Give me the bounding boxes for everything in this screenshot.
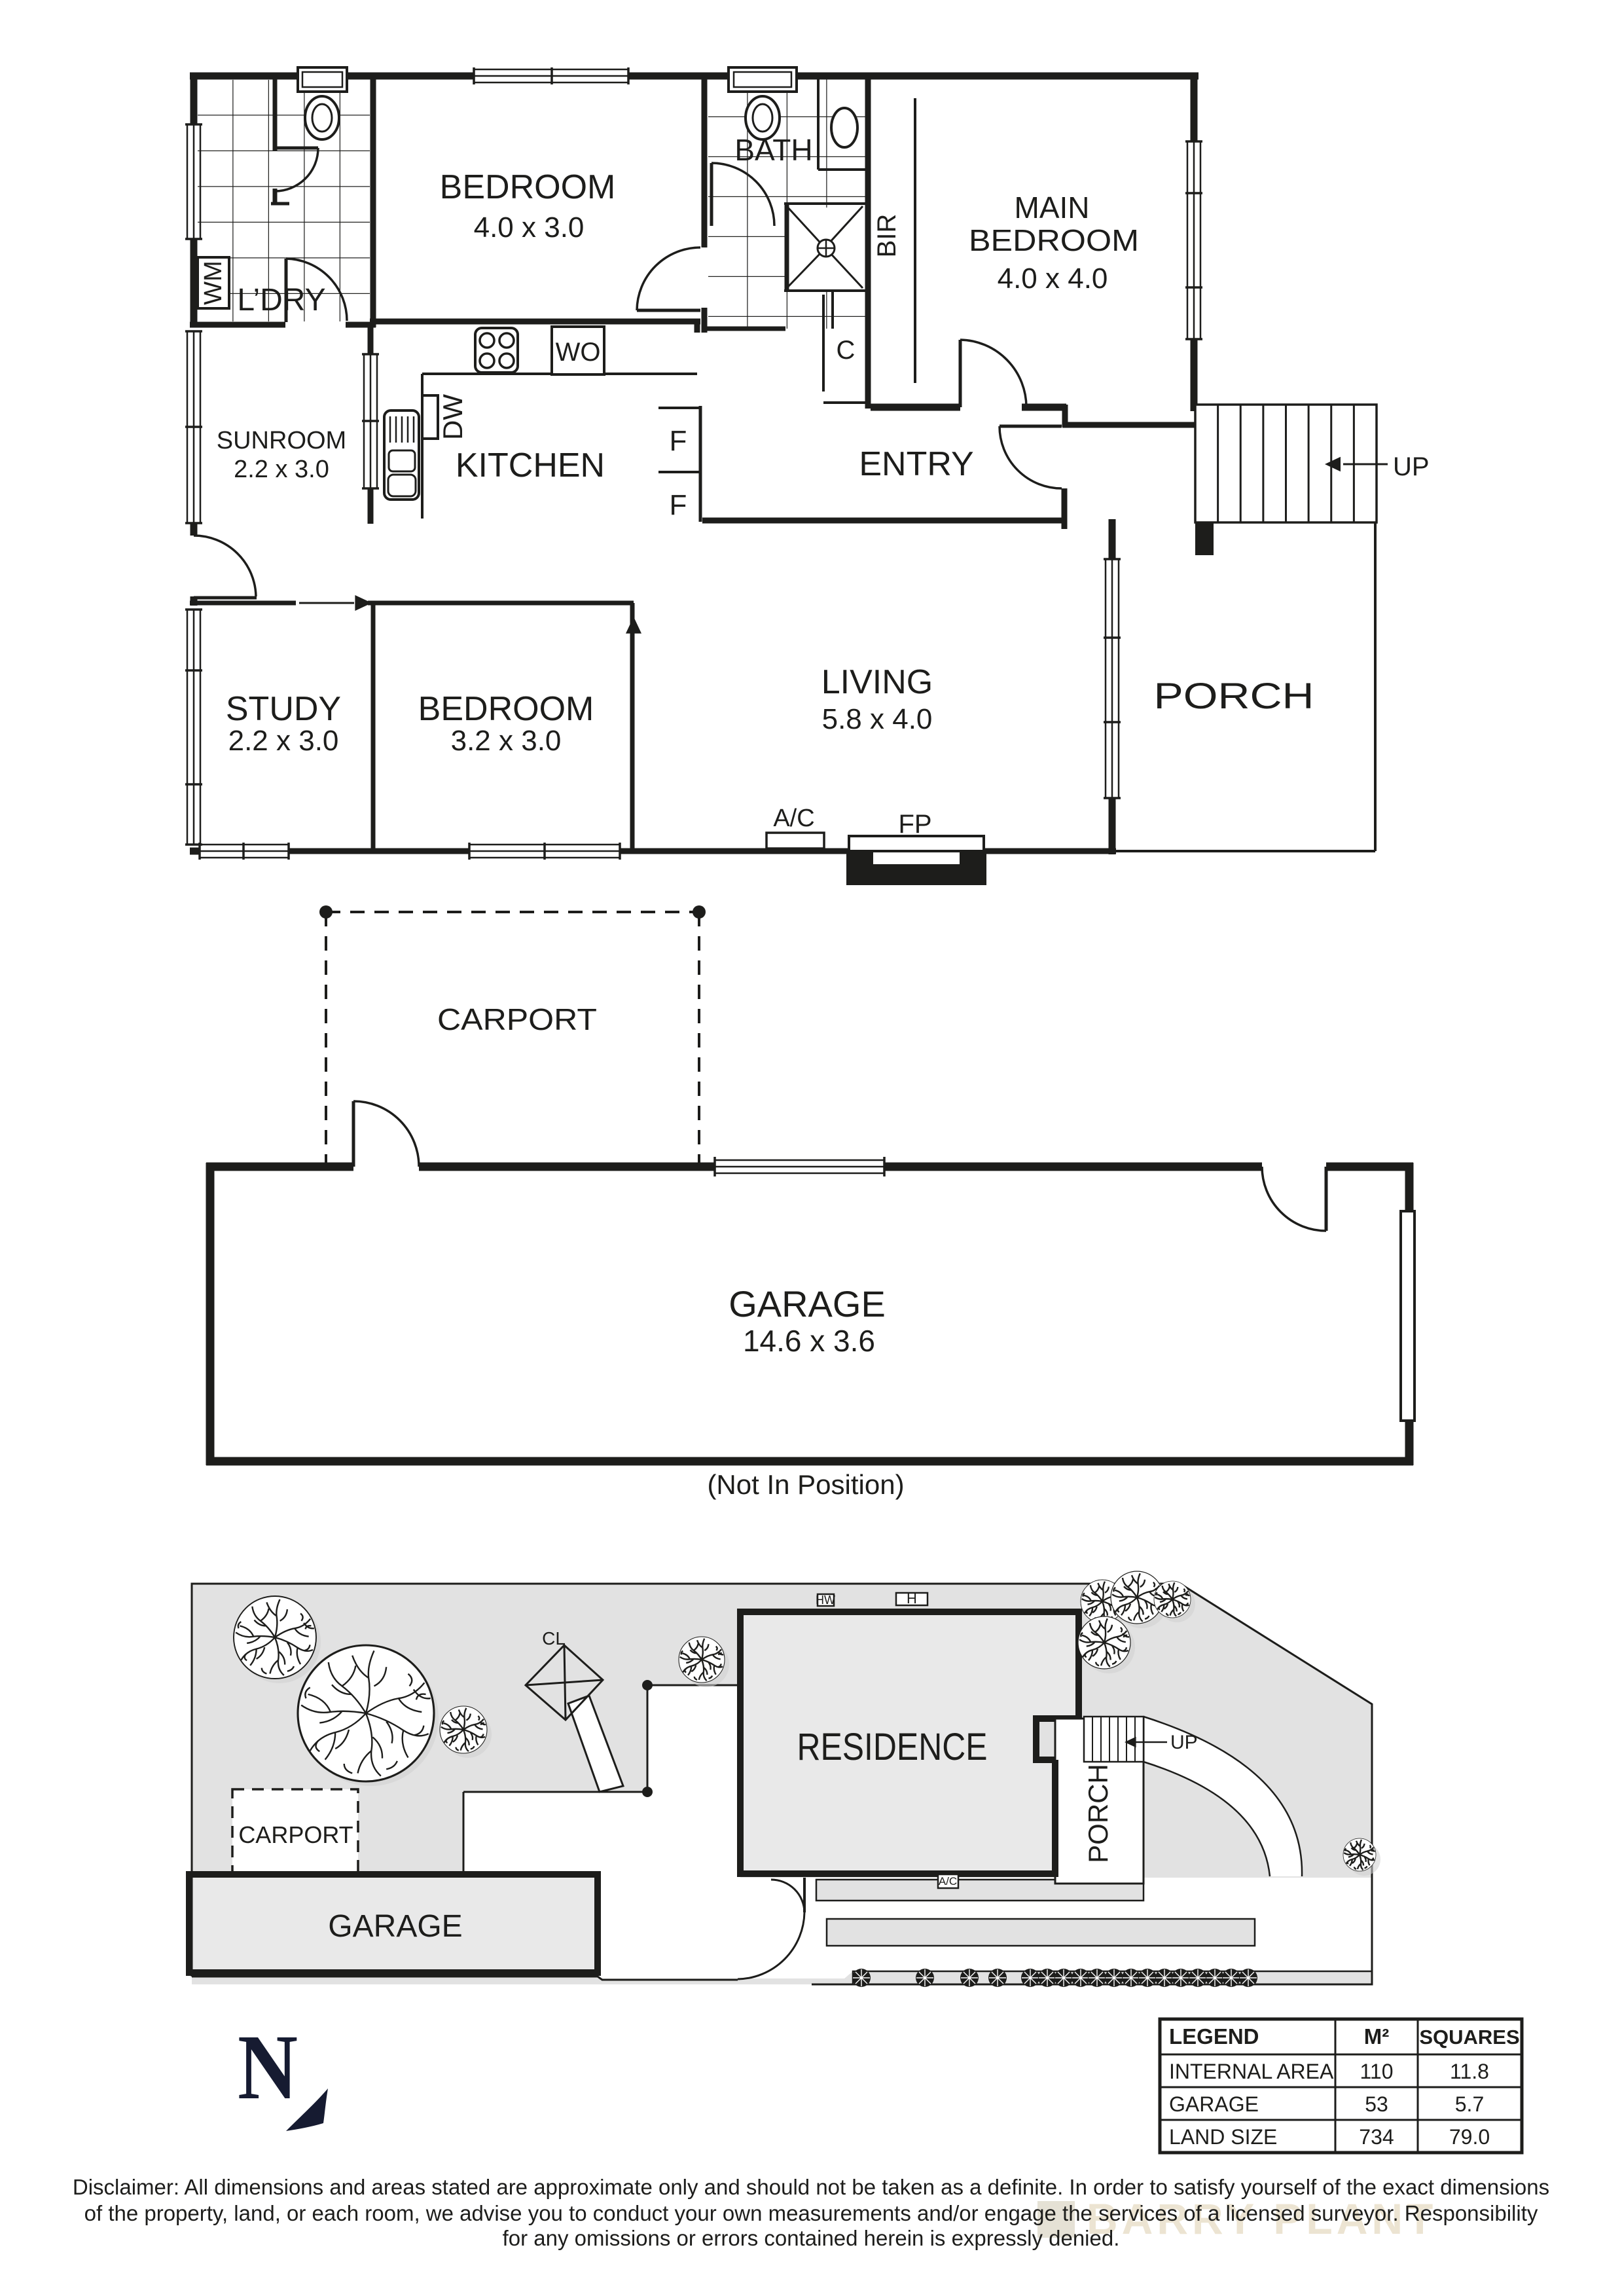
svg-text:KITCHEN: KITCHEN bbox=[456, 446, 605, 484]
svg-text:BEDROOM: BEDROOM bbox=[969, 223, 1139, 257]
svg-text:BEDROOM: BEDROOM bbox=[440, 168, 616, 206]
svg-text:BEDROOM: BEDROOM bbox=[418, 690, 594, 728]
svg-text:LIVING: LIVING bbox=[821, 663, 933, 701]
svg-text:PORCH: PORCH bbox=[1154, 675, 1314, 716]
svg-text:3.2 x 3.0: 3.2 x 3.0 bbox=[451, 725, 562, 757]
svg-text:INTERNAL AREA: INTERNAL AREA bbox=[1169, 2060, 1334, 2083]
svg-text:2.2 x 3.0: 2.2 x 3.0 bbox=[234, 456, 329, 483]
svg-text:N: N bbox=[238, 2015, 298, 2119]
svg-text:PORCH: PORCH bbox=[1083, 1764, 1113, 1863]
svg-text:5.7: 5.7 bbox=[1455, 2092, 1484, 2116]
svg-text:(Not In Position): (Not In Position) bbox=[707, 1469, 904, 1500]
svg-text:F: F bbox=[670, 425, 687, 457]
svg-text:GARAGE: GARAGE bbox=[729, 1283, 886, 1324]
svg-text:GARAGE: GARAGE bbox=[328, 1909, 462, 1944]
svg-text:14.6 x 3.6: 14.6 x 3.6 bbox=[743, 1324, 875, 1358]
svg-text:53: 53 bbox=[1365, 2092, 1388, 2116]
svg-text:F: F bbox=[670, 489, 687, 521]
svg-text:BATH: BATH bbox=[734, 133, 812, 167]
svg-text:110: 110 bbox=[1360, 2060, 1393, 2083]
svg-text:H: H bbox=[907, 1590, 917, 1607]
svg-text:SQUARES: SQUARES bbox=[1419, 2026, 1519, 2049]
svg-text:STUDY: STUDY bbox=[226, 690, 341, 728]
svg-text:SUNROOM: SUNROOM bbox=[217, 427, 346, 454]
svg-text:734: 734 bbox=[1359, 2125, 1394, 2149]
svg-text:CARPORT: CARPORT bbox=[238, 1821, 353, 1848]
svg-text:C: C bbox=[837, 336, 856, 365]
svg-text:4.0 x 3.0: 4.0 x 3.0 bbox=[474, 211, 585, 244]
svg-text:CL: CL bbox=[542, 1628, 566, 1649]
svg-text:BIR: BIR bbox=[873, 214, 901, 258]
svg-text:GARAGE: GARAGE bbox=[1169, 2092, 1259, 2116]
svg-text:UP: UP bbox=[1170, 1732, 1198, 1753]
svg-text:ENTRY: ENTRY bbox=[859, 445, 973, 483]
svg-text:CARPORT: CARPORT bbox=[437, 1002, 597, 1036]
svg-text:11.8: 11.8 bbox=[1450, 2060, 1489, 2083]
svg-text:WO: WO bbox=[556, 338, 601, 367]
svg-text:Disclaimer: All dimensions and: Disclaimer: All dimensions and areas sta… bbox=[73, 2175, 1549, 2199]
svg-text:HW: HW bbox=[816, 1594, 835, 1607]
svg-text:4.0 x 4.0: 4.0 x 4.0 bbox=[998, 263, 1108, 295]
svg-text:FP: FP bbox=[898, 810, 931, 839]
svg-text:5.8 x 4.0: 5.8 x 4.0 bbox=[822, 703, 933, 735]
svg-text:UP: UP bbox=[1393, 452, 1430, 481]
svg-text:for any omissions or errors co: for any omissions or errors contained he… bbox=[503, 2226, 1120, 2250]
svg-text:WM: WM bbox=[200, 261, 227, 305]
svg-text:M²: M² bbox=[1364, 2024, 1389, 2049]
svg-text:L’DRY: L’DRY bbox=[237, 283, 325, 318]
svg-text:of the property, land, or each: of the property, land, or each room, we … bbox=[84, 2201, 1538, 2225]
svg-text:2.2 x 3.0: 2.2 x 3.0 bbox=[228, 725, 339, 757]
svg-text:RESIDENCE: RESIDENCE bbox=[797, 1726, 988, 1768]
svg-text:A/C: A/C bbox=[773, 805, 814, 832]
svg-text:LAND SIZE: LAND SIZE bbox=[1169, 2125, 1277, 2149]
svg-text:MAIN: MAIN bbox=[1015, 191, 1090, 225]
svg-text:A/C: A/C bbox=[939, 1875, 957, 1887]
svg-text:DW: DW bbox=[437, 394, 468, 440]
svg-text:LEGEND: LEGEND bbox=[1169, 2024, 1259, 2049]
svg-text:79.0: 79.0 bbox=[1449, 2125, 1490, 2149]
